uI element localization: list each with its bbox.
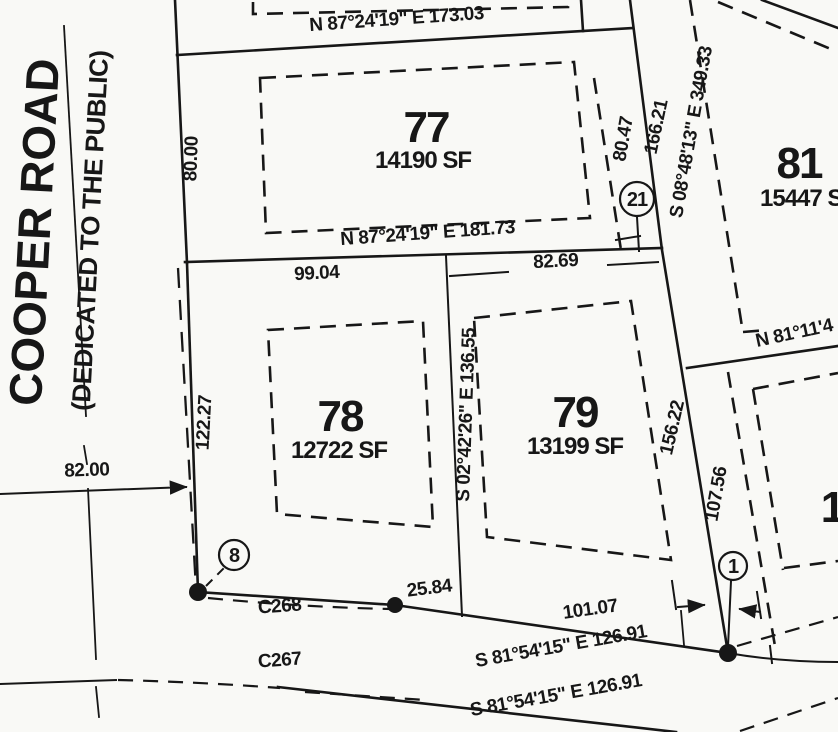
dim-166-21-label: 166.21 [641,97,673,156]
marker-1-label: 1 [728,556,739,578]
curve-c268-label: C268 [257,595,302,619]
marker-8-label: 8 [229,545,240,567]
curve-c267-dashed-line [118,680,280,688]
dim-156-22-label: 156.22 [656,399,689,457]
lot81-number: 81 [777,139,823,188]
lot81-area: 15447 SF [760,185,838,212]
dim-8269-leader-left [450,272,508,276]
road-name-label: COOPER ROAD [0,57,69,407]
dim-bracket-left-drop [681,611,684,645]
building-envelopes [253,0,838,652]
dim-82-leader-arrow [0,487,186,494]
road-centerline-segment [88,489,96,659]
dim-99-04-label: 99.04 [294,262,341,285]
dim-101-07-label: 101.07 [561,595,619,623]
monument-dot-se [719,644,737,662]
south-row-dashed-ne-line [740,698,838,731]
se-lot-partial-number: 1 [821,483,838,532]
bearing-east-label: S 08°48'13" E 349.33 [666,45,717,220]
dim-122-27-label: 122.27 [193,395,217,451]
west-boundary-upper-line [175,0,187,263]
point-markers: 21 8 1 [219,182,747,580]
monument-dot-mid [387,597,403,613]
north-lots-division-line [581,0,583,31]
se-lot-envelope-bottom-line [784,561,838,568]
lot79-number: 79 [553,388,598,437]
dim-80-00-label: 80.00 [180,136,203,182]
lot77-south-line [185,248,662,262]
dim-arrow-left [678,605,704,607]
south-road-edge-line [0,680,116,684]
lot78-number: 78 [318,392,364,441]
dim-bracket-right [757,592,761,618]
marker21-leader-line [637,217,639,251]
lot77-easement-dashed-line [594,78,621,250]
lot81-envelope-top-line [718,2,838,52]
row-dashed-ne-of-corner-line [737,617,838,646]
lot79-area: 13199 SF [527,433,623,460]
marker1-leader-line [728,581,731,647]
road-edge-after-corner-line [728,653,838,662]
bearing-top-label: N 87°24'19" E 173.03 [309,3,485,36]
dim-82-69-label: 82.69 [533,250,579,273]
dim-bracket-left [672,581,676,609]
monument-dot-sw [189,583,207,601]
se-lot-envelope-left-line [753,389,783,570]
dim-25-84-label: 25.84 [406,575,454,601]
curve-c267-label: C267 [257,649,302,673]
road-name-labels: COOPER ROAD (DEDICATED TO THE PUBLIC) [0,50,114,412]
dim-107-56-label: 107.56 [701,465,731,523]
dim-80-47-label: 80.47 [609,115,638,163]
east-boundary-line [630,0,728,653]
lot-labels: 77 14190 SF 78 12722 SF 79 13199 SF 81 1… [291,103,838,532]
corner-tick [770,646,772,663]
road-centerline-segment [96,687,99,717]
dim-8269-leader-right [608,262,658,265]
plat-map-svg: 21 8 1 77 14190 SF 78 12722 SF 79 13199 … [0,0,838,732]
lot77-area: 14190 SF [375,147,471,174]
bearing-mid-label: S 02°42'26" E 136.55 [453,327,480,502]
lot77-number: 77 [404,103,449,152]
marker8-leader-dashed [206,568,224,586]
road-dedication-label: (DEDICATED TO THE PUBLIC) [66,50,115,412]
bearing-lot77-south-label: N 87°24'19" E 181.73 [340,217,516,250]
bearing-south-lower-label: S 81°54'15" E 126.91 [469,670,645,721]
lot78-area: 12722 SF [291,437,387,464]
se-lot-envelope-top-line [753,373,838,389]
bearing-lot81-south-label: N 81°11'4 [754,315,836,352]
dim-82-00-label: 82.00 [64,459,110,482]
dim-arrow-right [740,609,760,612]
marker-21-label: 21 [627,189,648,211]
north-lots-south-line [177,28,633,55]
